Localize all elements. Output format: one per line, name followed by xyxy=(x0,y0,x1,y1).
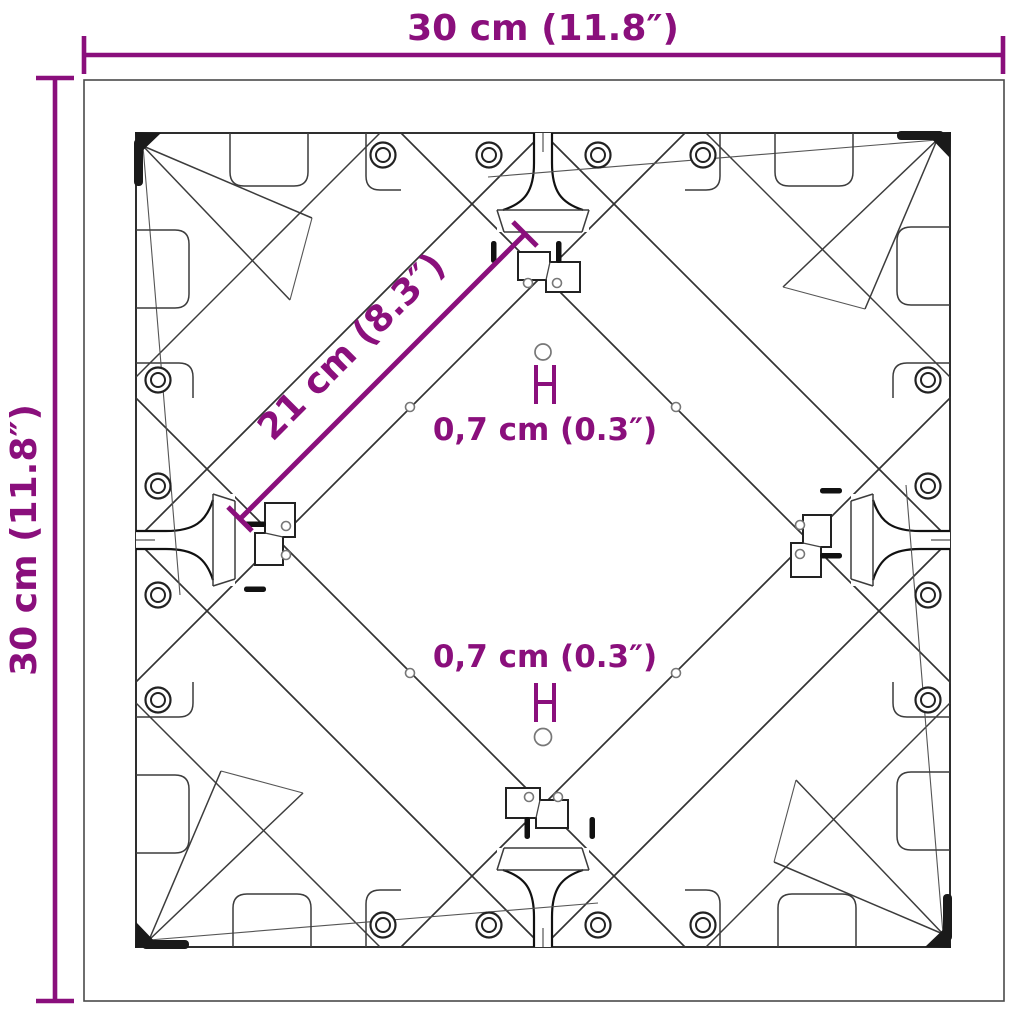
diamond-vertex-left xyxy=(244,503,295,592)
dimension-bracket-length-label: 21 cm (8.3″) xyxy=(250,245,453,448)
center-hole-top xyxy=(535,344,551,360)
dimension-width-label: 30 cm (11.8″) xyxy=(407,8,679,49)
diagram-canvas: 30 cm (11.8″) 30 cm (11.8″) 21 cm (8.3″)… xyxy=(0,0,1024,1024)
hole-diameter-marker-top xyxy=(534,365,556,404)
diamond-vertex-right xyxy=(791,488,842,577)
center-hole-bottom xyxy=(535,729,552,746)
dimension-height-label: 30 cm (11.8″) xyxy=(4,404,45,676)
frame-structure xyxy=(84,80,1004,1001)
hole-diameter-top-label: 0,7 cm (0.3″) xyxy=(433,412,657,448)
diamond-vertex-top xyxy=(491,241,580,292)
trumpet-notch-left xyxy=(136,494,235,586)
diamond-vertex-bottom xyxy=(506,788,595,839)
trumpet-notch-bottom xyxy=(497,848,589,947)
hole-diameter-marker-bottom xyxy=(534,683,556,722)
trumpet-notch-right xyxy=(851,494,950,586)
trumpet-notch-top xyxy=(497,133,589,232)
dimension-bracket-length xyxy=(228,222,537,531)
dimension-diagram: 30 cm (11.8″) 30 cm (11.8″) 21 cm (8.3″)… xyxy=(0,0,1024,1024)
hole-diameter-bottom-label: 0,7 cm (0.3″) xyxy=(433,639,657,675)
